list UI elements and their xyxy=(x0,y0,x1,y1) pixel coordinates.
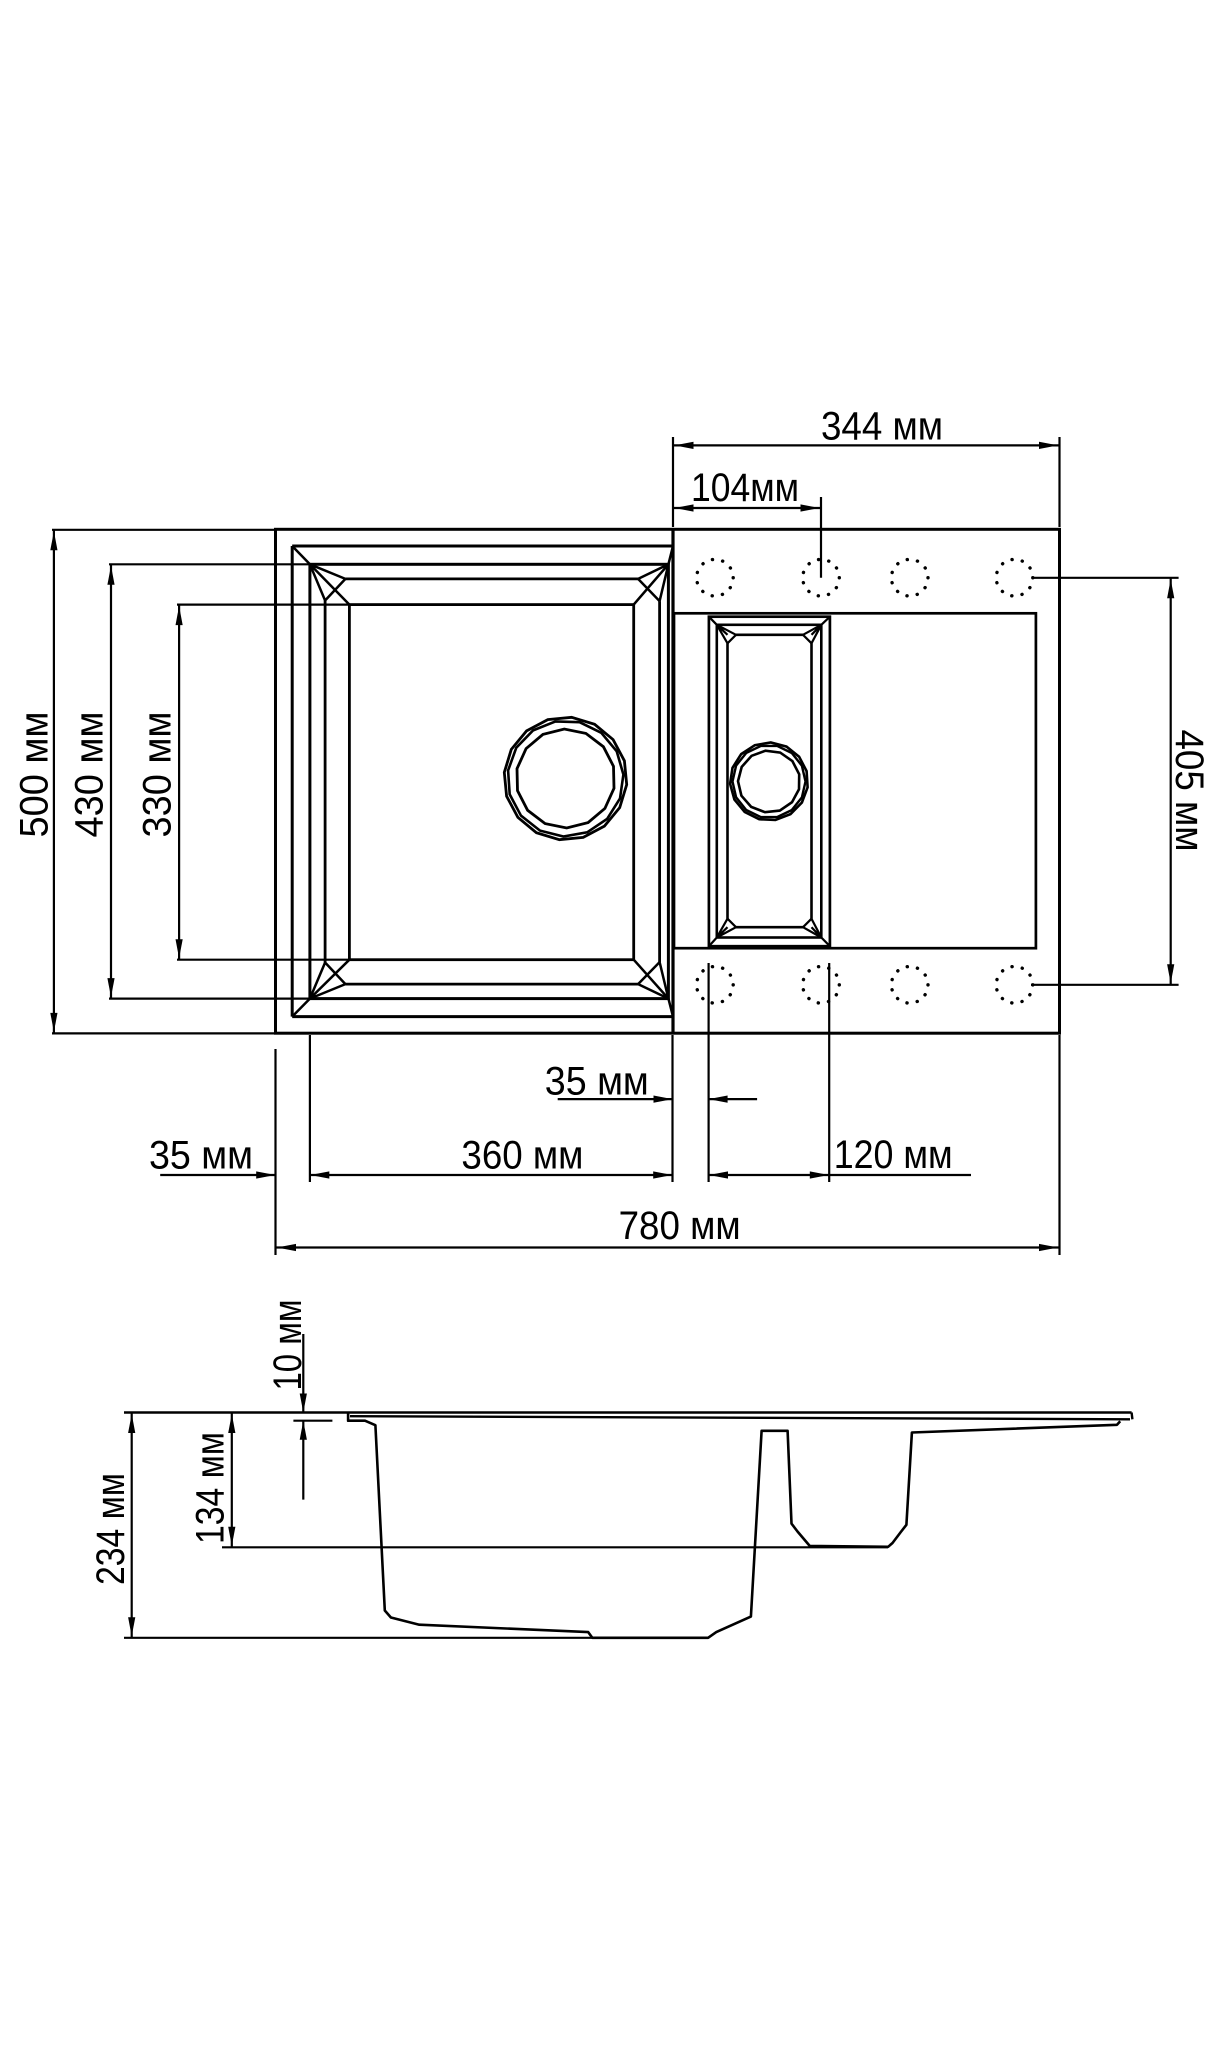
svg-text:35 мм: 35 мм xyxy=(149,1134,253,1178)
svg-text:360 мм: 360 мм xyxy=(461,1134,583,1178)
svg-text:405 мм: 405 мм xyxy=(1167,730,1211,852)
svg-text:500 мм: 500 мм xyxy=(13,712,57,838)
svg-text:35 мм: 35 мм xyxy=(545,1060,649,1104)
svg-text:10 мм: 10 мм xyxy=(266,1300,310,1391)
svg-text:344 мм: 344 мм xyxy=(821,405,943,449)
svg-text:780 мм: 780 мм xyxy=(619,1204,741,1248)
svg-text:120 мм: 120 мм xyxy=(834,1133,953,1177)
svg-text:430 мм: 430 мм xyxy=(67,712,111,838)
svg-text:134 мм: 134 мм xyxy=(189,1432,233,1544)
svg-text:104мм: 104мм xyxy=(691,466,799,510)
svg-text:234 мм: 234 мм xyxy=(89,1473,133,1585)
svg-text:330 мм: 330 мм xyxy=(135,712,179,838)
